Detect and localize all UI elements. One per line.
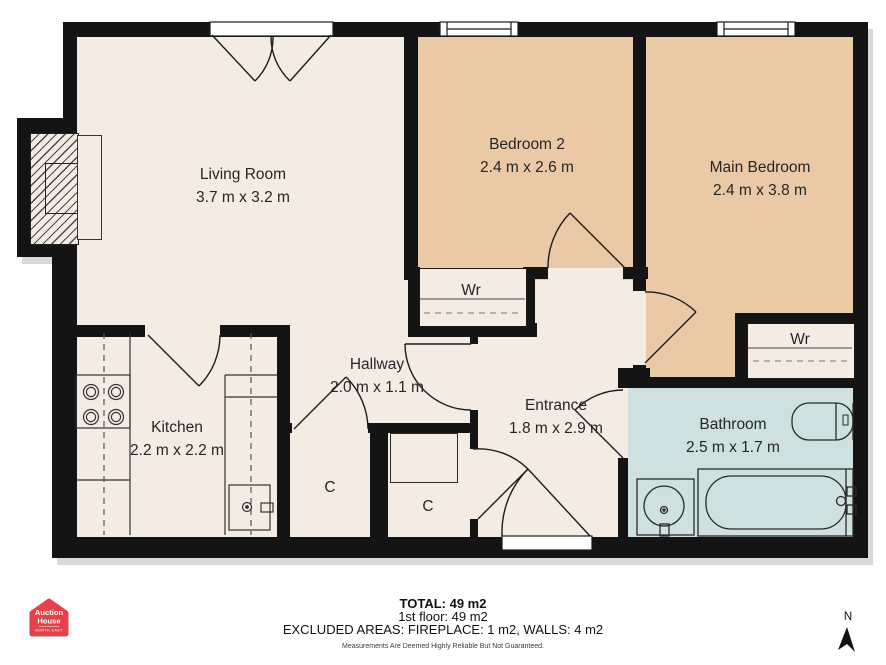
room-name: Bathroom bbox=[686, 413, 780, 436]
window-symbols bbox=[210, 22, 795, 550]
room-dims: 2.4 m x 2.6 m bbox=[480, 156, 574, 179]
closet-label-c2: C bbox=[422, 497, 433, 517]
compass-north-label: N bbox=[840, 611, 856, 623]
room-name: Main Bedroom bbox=[710, 156, 811, 179]
north-arrow-icon bbox=[836, 624, 858, 654]
french-door-sill bbox=[210, 22, 333, 36]
room-name: Bedroom 2 bbox=[480, 133, 574, 156]
room-label-bedroom2: Bedroom 2 2.4 m x 2.6 m bbox=[480, 133, 574, 179]
room-label-main-bedroom: Main Bedroom 2.4 m x 3.8 m bbox=[710, 156, 811, 202]
front-door-sill bbox=[502, 536, 592, 550]
bathroom-sink bbox=[637, 479, 694, 536]
room-dims: 2.5 m x 1.7 m bbox=[686, 436, 780, 459]
front-door bbox=[502, 469, 590, 536]
door-swing-symbols bbox=[148, 35, 696, 536]
kitchen-door bbox=[148, 335, 220, 386]
room-dims: 2.0 m x 1.1 m bbox=[330, 376, 424, 399]
closet2-door bbox=[473, 449, 528, 519]
room-name: Kitchen bbox=[130, 416, 224, 439]
french-door-right bbox=[271, 35, 331, 81]
closet-label-wr1: Wr bbox=[461, 281, 481, 301]
room-name: Entrance bbox=[509, 394, 603, 417]
disclaimer-text: Measurements Are Deemed Highly Reliable … bbox=[0, 643, 886, 650]
plan-symbols bbox=[0, 0, 886, 576]
closet-label-c1: C bbox=[324, 478, 335, 498]
room-dims: 1.8 m x 2.9 m bbox=[509, 417, 603, 440]
room-label-hallway: Hallway 2.0 m x 1.1 m bbox=[330, 353, 424, 399]
logo-region: NORTH EAST bbox=[35, 629, 63, 633]
room-dims: 3.7 m x 3.2 m bbox=[196, 186, 290, 209]
closet-label-wr2: Wr bbox=[790, 330, 810, 350]
floorplan-page: { "plan": { "rooms": [ {"name": "Living … bbox=[0, 0, 886, 665]
room-name: Living Room bbox=[196, 163, 290, 186]
french-door-left bbox=[212, 35, 273, 81]
room-label-living-room: Living Room 3.7 m x 3.2 m bbox=[196, 163, 290, 209]
main-bedroom-door bbox=[645, 292, 696, 363]
floorplan: Living Room 3.7 m x 3.2 m Bedroom 2 2.4 … bbox=[0, 0, 886, 576]
toilet bbox=[792, 403, 853, 440]
room-label-bathroom: Bathroom 2.5 m x 1.7 m bbox=[686, 413, 780, 459]
room-dims: 2.2 m x 2.2 m bbox=[130, 439, 224, 462]
bathtub bbox=[698, 469, 856, 536]
auction-house-logo: Auction House NORTH EAST bbox=[28, 598, 70, 640]
bedroom2-door bbox=[548, 213, 625, 268]
room-dims: 2.4 m x 3.8 m bbox=[710, 179, 811, 202]
room-label-entrance: Entrance 1.8 m x 2.9 m bbox=[509, 394, 603, 440]
logo-line2: House bbox=[37, 617, 60, 626]
wardrobe-rails bbox=[419, 299, 852, 361]
room-name: Hallway bbox=[330, 353, 424, 376]
room-label-kitchen: Kitchen 2.2 m x 2.2 m bbox=[130, 416, 224, 462]
excluded-areas-text: EXCLUDED AREAS: FIREPLACE: 1 m2, WALLS: … bbox=[0, 622, 886, 637]
